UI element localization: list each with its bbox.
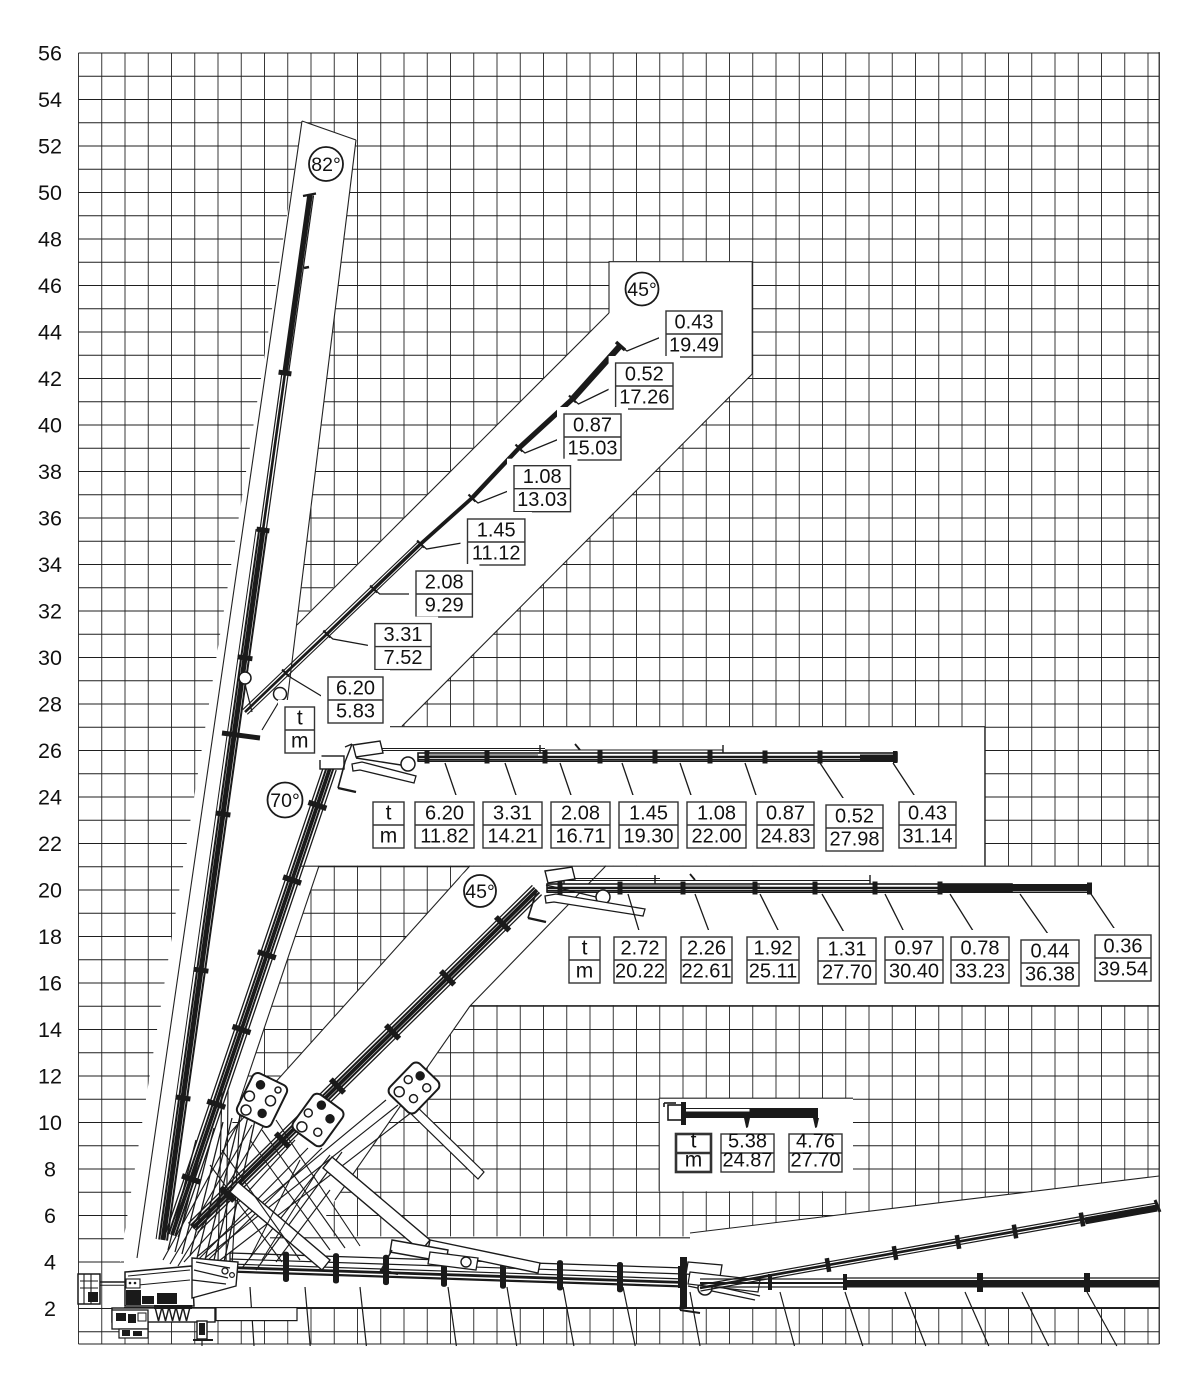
svg-text:3.31: 3.31 (493, 803, 532, 825)
svg-text:27.98: 27.98 (829, 829, 879, 851)
svg-text:20: 20 (38, 879, 62, 903)
svg-text:8: 8 (44, 1158, 56, 1182)
svg-text:40: 40 (38, 414, 62, 438)
svg-text:13.03: 13.03 (517, 489, 567, 511)
svg-text:2.08: 2.08 (561, 803, 600, 825)
svg-text:0.36: 0.36 (1104, 936, 1143, 958)
svg-text:t: t (297, 707, 303, 730)
svg-text:m: m (685, 1149, 703, 1172)
svg-text:15.03: 15.03 (567, 438, 617, 460)
svg-text:50: 50 (38, 181, 62, 205)
svg-text:1.31: 1.31 (828, 939, 867, 961)
svg-text:27.70: 27.70 (790, 1150, 840, 1172)
svg-text:14.21: 14.21 (487, 826, 537, 848)
svg-text:45°: 45° (465, 881, 495, 903)
svg-text:18: 18 (38, 925, 62, 949)
svg-text:20.22: 20.22 (615, 961, 665, 983)
svg-text:31.14: 31.14 (902, 826, 952, 848)
svg-text:m: m (291, 730, 309, 753)
svg-text:2.72: 2.72 (621, 938, 660, 960)
svg-text:10: 10 (38, 1111, 62, 1135)
svg-text:1.45: 1.45 (477, 520, 516, 542)
svg-text:36: 36 (38, 507, 62, 531)
svg-text:22.61: 22.61 (681, 961, 731, 983)
svg-text:5.83: 5.83 (336, 701, 375, 723)
svg-text:2.08: 2.08 (425, 572, 464, 594)
svg-text:1.92: 1.92 (754, 938, 793, 960)
svg-text:6.20: 6.20 (425, 803, 464, 825)
svg-text:32: 32 (38, 600, 62, 624)
svg-text:16.71: 16.71 (555, 826, 605, 848)
svg-text:48: 48 (38, 228, 62, 252)
svg-text:25.11: 25.11 (749, 961, 798, 983)
svg-text:39.54: 39.54 (1098, 959, 1148, 981)
svg-text:70°: 70° (270, 790, 300, 812)
svg-text:6.20: 6.20 (336, 678, 375, 700)
svg-text:0.97: 0.97 (895, 938, 934, 960)
svg-text:45°: 45° (627, 279, 657, 301)
svg-text:11.82: 11.82 (420, 826, 469, 848)
svg-text:19.49: 19.49 (669, 335, 719, 357)
svg-text:3.31: 3.31 (384, 624, 423, 646)
svg-text:0.52: 0.52 (625, 364, 664, 386)
svg-text:m: m (576, 960, 594, 983)
svg-text:0.43: 0.43 (908, 803, 947, 825)
svg-text:1.08: 1.08 (523, 466, 562, 488)
svg-text:m: m (380, 825, 398, 848)
svg-text:38: 38 (38, 460, 62, 484)
svg-text:24.87: 24.87 (722, 1150, 772, 1172)
svg-text:t: t (582, 937, 588, 960)
svg-text:0.78: 0.78 (961, 938, 1000, 960)
svg-text:14: 14 (38, 1018, 62, 1042)
svg-text:52: 52 (38, 135, 62, 159)
svg-text:0.43: 0.43 (675, 312, 714, 334)
svg-text:1.45: 1.45 (629, 803, 668, 825)
svg-text:33.23: 33.23 (955, 961, 1005, 983)
svg-text:82°: 82° (311, 154, 341, 176)
svg-text:36.38: 36.38 (1025, 964, 1075, 986)
svg-text:17.26: 17.26 (619, 387, 669, 409)
svg-text:54: 54 (38, 88, 62, 112)
svg-text:28: 28 (38, 693, 62, 717)
svg-text:t: t (386, 802, 392, 825)
svg-text:7.52: 7.52 (384, 647, 423, 669)
svg-text:6: 6 (44, 1204, 56, 1228)
svg-text:24.83: 24.83 (760, 826, 810, 848)
svg-text:16: 16 (38, 972, 62, 996)
svg-text:56: 56 (38, 42, 62, 66)
svg-text:46: 46 (38, 274, 62, 298)
svg-text:34: 34 (38, 553, 62, 577)
svg-text:19.30: 19.30 (623, 826, 673, 848)
svg-text:0.52: 0.52 (835, 806, 874, 828)
svg-text:9.29: 9.29 (425, 595, 464, 617)
svg-text:22.00: 22.00 (691, 826, 741, 848)
svg-text:42: 42 (38, 367, 62, 391)
svg-text:22: 22 (38, 832, 62, 856)
svg-text:11.12: 11.12 (472, 543, 521, 565)
svg-text:12: 12 (38, 1065, 62, 1089)
svg-text:27.70: 27.70 (822, 962, 872, 984)
svg-text:26: 26 (38, 739, 62, 763)
svg-text:30: 30 (38, 646, 62, 670)
svg-text:4: 4 (44, 1251, 56, 1275)
svg-text:0.87: 0.87 (573, 415, 612, 437)
svg-text:44: 44 (38, 321, 62, 345)
svg-text:0.87: 0.87 (766, 803, 805, 825)
svg-text:0.44: 0.44 (1031, 941, 1070, 963)
svg-text:2.26: 2.26 (687, 938, 726, 960)
svg-text:2: 2 (44, 1297, 56, 1321)
svg-text:24: 24 (38, 786, 62, 810)
svg-text:30.40: 30.40 (889, 961, 939, 983)
svg-text:1.08: 1.08 (697, 803, 736, 825)
